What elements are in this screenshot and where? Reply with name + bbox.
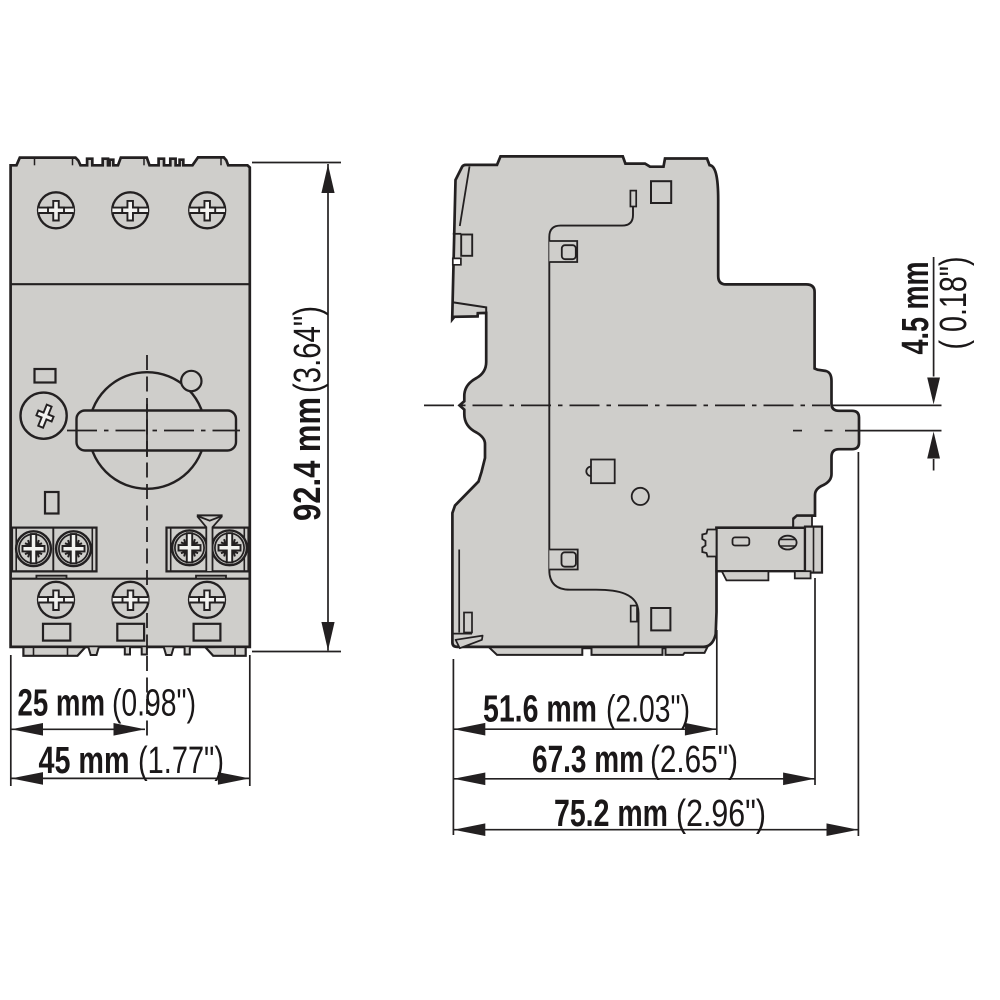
svg-text:(2.96"): (2.96")	[676, 793, 766, 835]
svg-text:25 mm: 25 mm	[18, 683, 106, 725]
svg-text:4.5 mm: 4.5 mm	[895, 262, 937, 355]
svg-text:45 mm: 45 mm	[39, 740, 130, 782]
svg-text:75.2 mm: 75.2 mm	[554, 793, 668, 835]
svg-text:67.3 mm: 67.3 mm	[532, 739, 644, 781]
svg-text:(0.98"): (0.98")	[112, 683, 196, 725]
svg-text:( 0.18"): ( 0.18")	[933, 257, 975, 350]
svg-text:51.6 mm: 51.6 mm	[483, 689, 597, 731]
svg-text:(1.77"): (1.77")	[138, 740, 224, 782]
svg-text:(2.03"): (2.03")	[606, 689, 690, 731]
svg-text:(2.65"): (2.65")	[650, 739, 738, 781]
svg-text:92.4 mm: 92.4 mm	[287, 397, 329, 521]
svg-text:(3.64"): (3.64")	[287, 306, 329, 393]
